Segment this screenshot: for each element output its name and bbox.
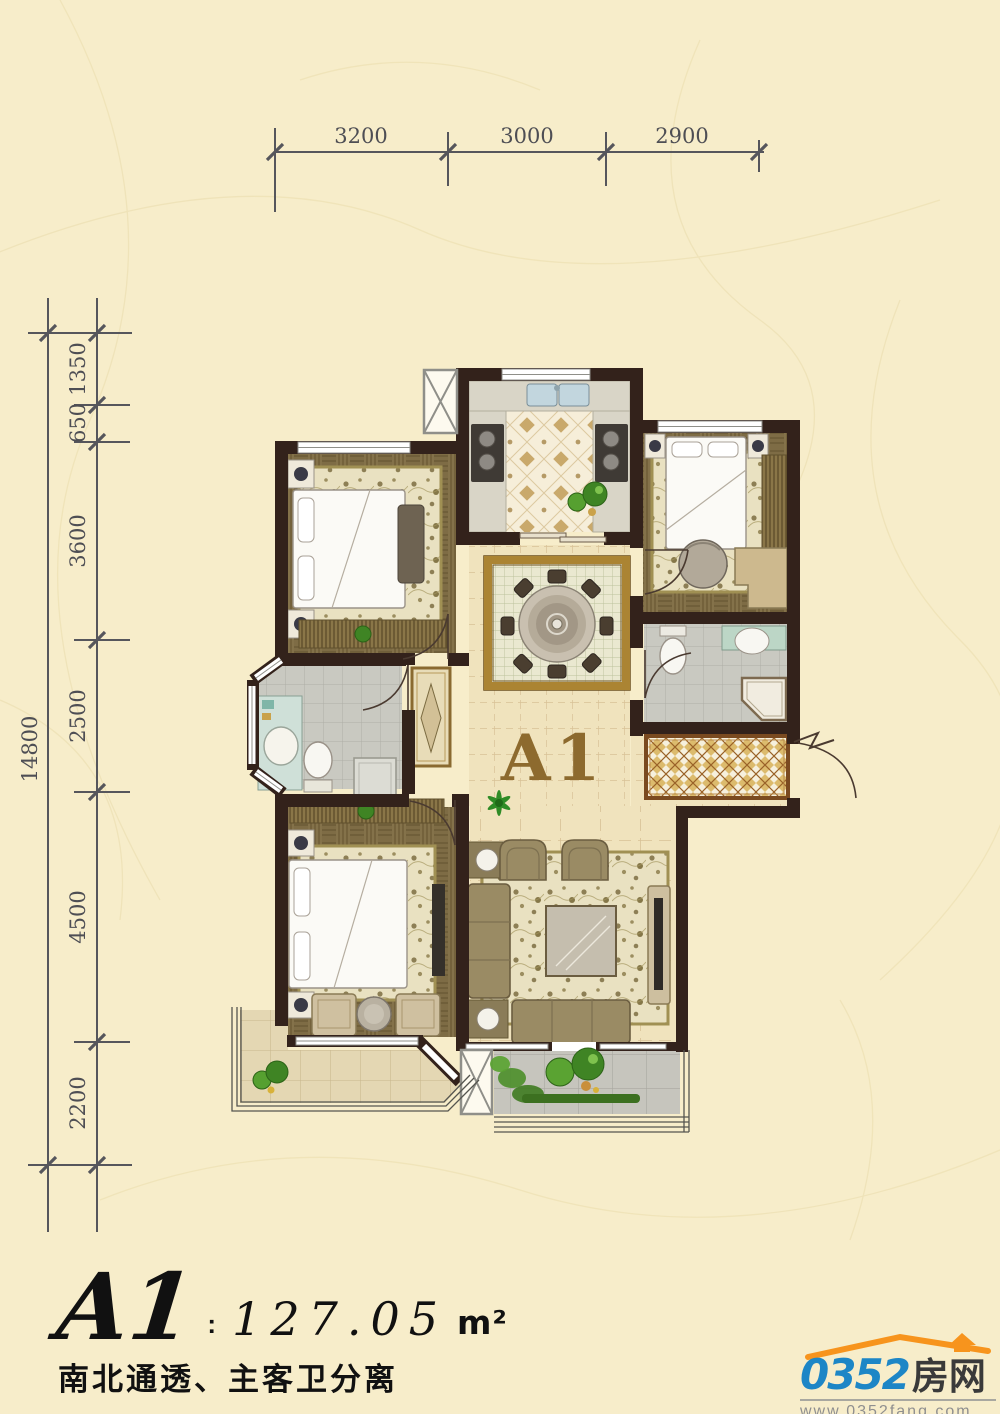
dim-left-1: 1350 bbox=[66, 342, 90, 395]
toilet bbox=[660, 638, 686, 674]
tv-bench bbox=[432, 884, 445, 976]
stove-right bbox=[595, 424, 628, 482]
dimension-top: 3200 3000 2900 bbox=[267, 124, 767, 212]
hallway-runner-rug bbox=[412, 668, 450, 766]
footer-unit-label: A1 bbox=[54, 1268, 198, 1346]
living-balcony-window bbox=[466, 1044, 548, 1049]
dim-left-5: 4500 bbox=[66, 890, 90, 943]
brand-number: 0352 bbox=[800, 1354, 909, 1396]
sofa bbox=[468, 884, 510, 998]
plant-icon bbox=[355, 626, 371, 642]
stove-left bbox=[471, 424, 504, 482]
dim-top-3: 2900 bbox=[655, 124, 708, 148]
footer-area-unit: m² bbox=[457, 1303, 508, 1342]
wardrobe bbox=[299, 620, 447, 648]
round-chair bbox=[679, 540, 727, 588]
footer-colon: : bbox=[207, 1309, 216, 1340]
shower-tray bbox=[354, 758, 396, 800]
footer: A1 : 127.05 m² 南北通透、主客卫分离 bbox=[58, 1246, 618, 1399]
bench bbox=[398, 505, 424, 583]
dim-left-2: 650 bbox=[66, 403, 90, 443]
entry-lattice-mat bbox=[646, 736, 788, 798]
sink bbox=[735, 628, 769, 654]
sink bbox=[264, 727, 298, 765]
dim-left-4: 2500 bbox=[66, 689, 90, 742]
dim-left-3: 3600 bbox=[66, 514, 90, 567]
tv bbox=[654, 898, 663, 990]
dim-left-6: 2200 bbox=[66, 1076, 90, 1129]
shaft-top bbox=[424, 370, 457, 433]
brand-text: 0352 房网 bbox=[800, 1354, 996, 1396]
brand-cn: 房网 bbox=[912, 1358, 986, 1395]
door-kitchen-sliding bbox=[520, 533, 606, 542]
plan-unit-label: A1 bbox=[500, 721, 605, 796]
dimension-left: 1350 650 3600 2500 4500 2200 14800 bbox=[18, 298, 132, 1232]
footer-area-value: 127.05 bbox=[232, 1296, 447, 1342]
floorplan-page: 3200 3000 2900 1350 650 3600 2500 4500 2… bbox=[0, 0, 1000, 1414]
floor-plan-canvas: 3200 3000 2900 1350 650 3600 2500 4500 2… bbox=[0, 0, 1000, 1414]
area-line: A1 : 127.05 m² bbox=[58, 1246, 618, 1346]
toilet bbox=[304, 742, 332, 778]
dim-top-1: 3200 bbox=[334, 124, 387, 148]
dim-left-total: 14800 bbox=[18, 716, 42, 783]
kitchen-sink bbox=[527, 384, 557, 406]
sofa bbox=[512, 1000, 630, 1044]
dim-top-2: 3000 bbox=[500, 124, 553, 148]
brand-website: www.0352fang.com bbox=[800, 1399, 996, 1414]
brand-logo: 0352 房网 www.0352fang.com bbox=[800, 1330, 996, 1414]
door-entry bbox=[794, 733, 856, 798]
